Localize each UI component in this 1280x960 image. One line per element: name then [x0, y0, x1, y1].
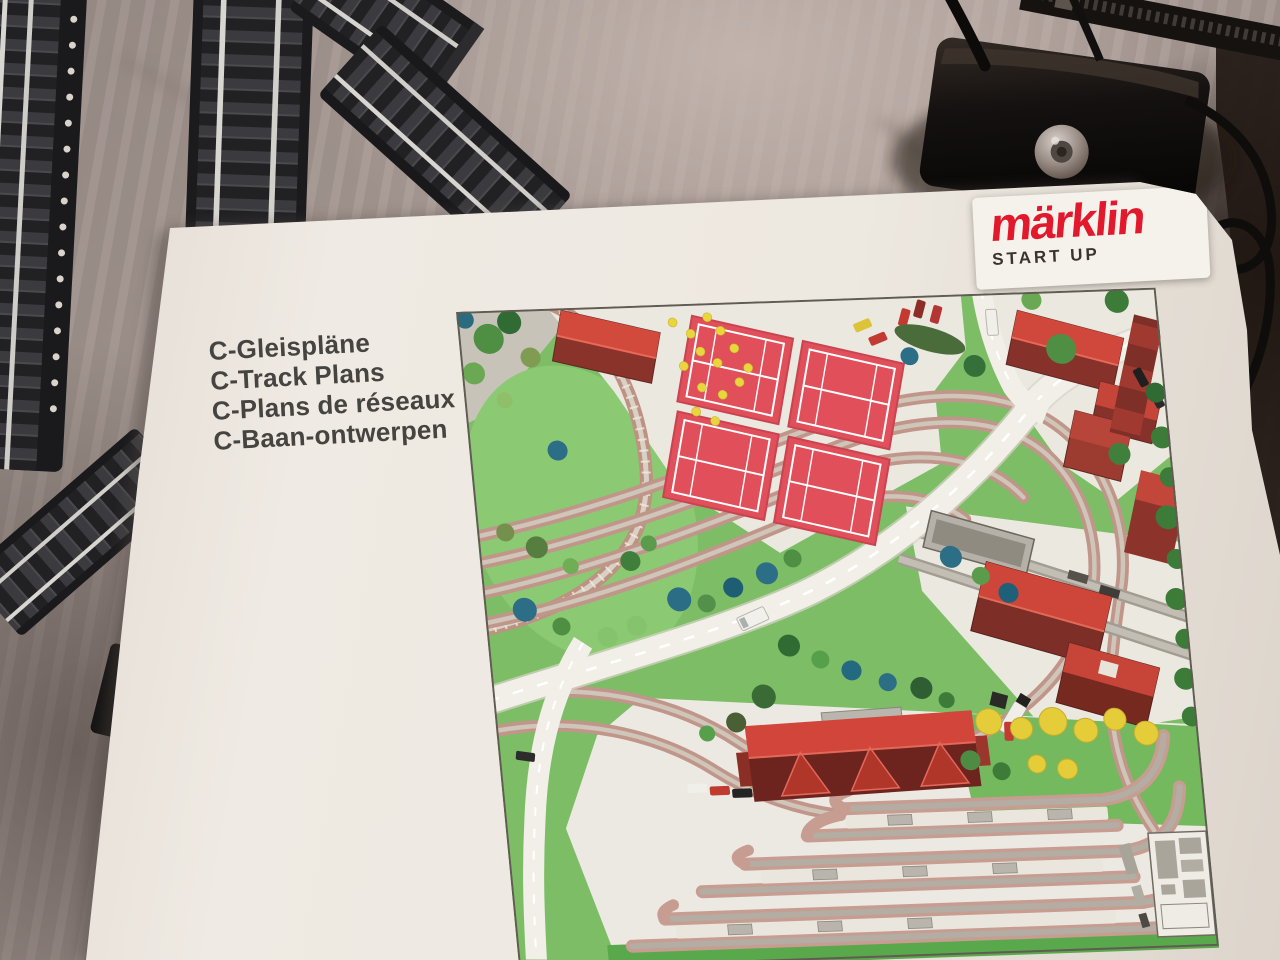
c-track-piece-left [0, 0, 90, 472]
c-track-piece-middle [185, 0, 314, 237]
car-black [732, 788, 753, 798]
marklin-logo: märklin [989, 193, 1146, 249]
van-white [985, 309, 998, 335]
track-plan-map [456, 288, 1221, 960]
photo-root: C-Gleispläne C-Track Plans C-Plans de ré… [0, 0, 1280, 960]
car-white [687, 783, 708, 793]
track-plan-map-wrap [456, 288, 1221, 960]
car-red [709, 786, 730, 796]
brand-label: märklin START UP [972, 186, 1210, 290]
booklet-title: C-Gleispläne C-Track Plans C-Plans de ré… [208, 321, 494, 455]
